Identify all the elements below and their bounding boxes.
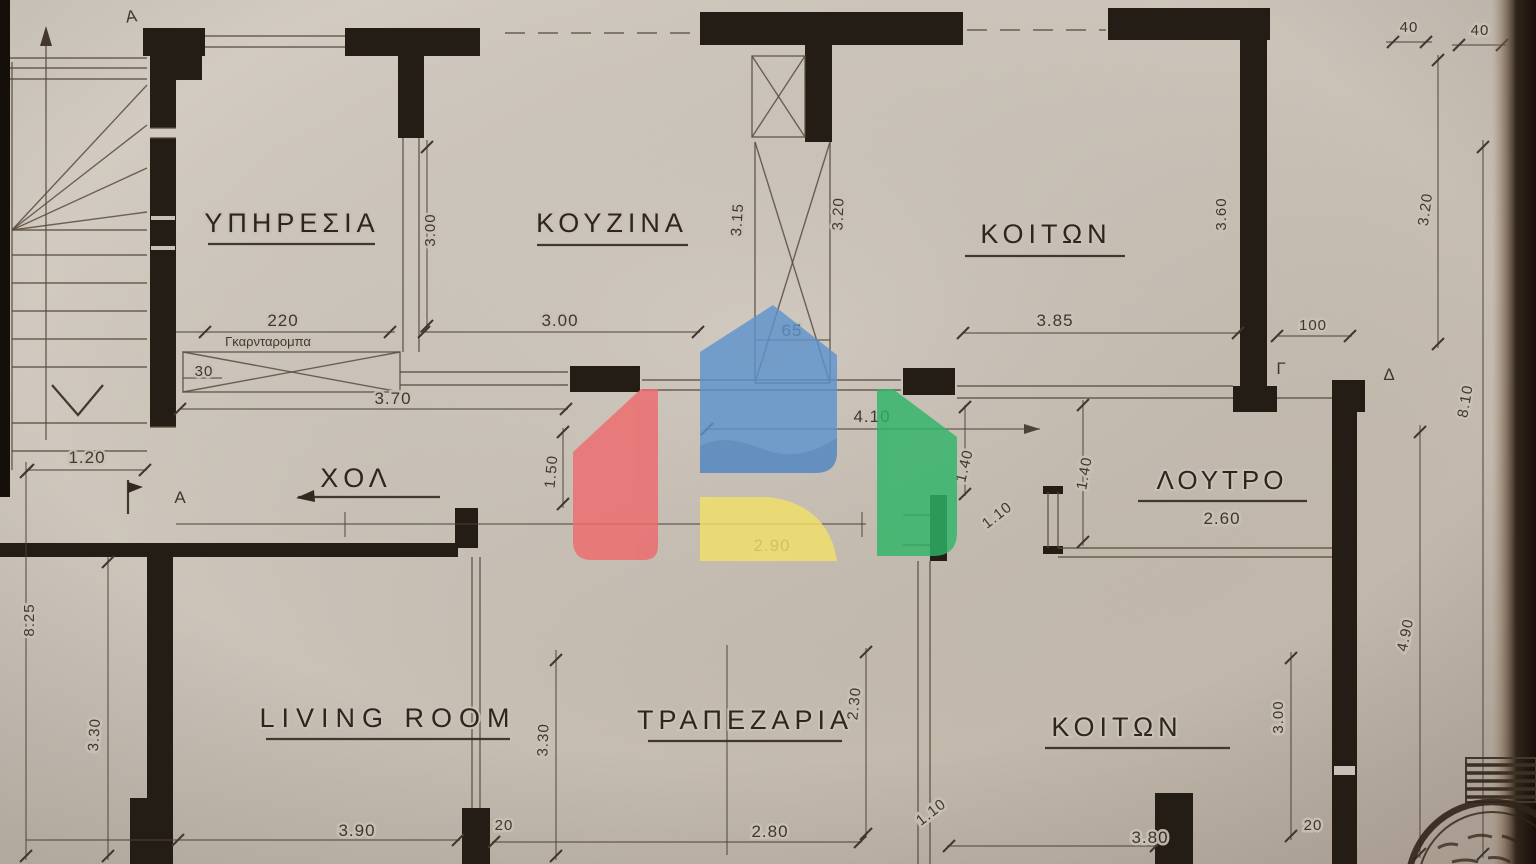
dim-3-80: 3.80: [1131, 828, 1168, 847]
dim-2-80: 2.80: [751, 822, 788, 841]
dim-40-a: 40: [1400, 19, 1419, 36]
dim-40-b: 40: [1471, 22, 1490, 39]
dim-30: 30: [195, 363, 214, 380]
dim-2-30: 2.30: [844, 686, 864, 721]
dim-100: 100: [1299, 317, 1327, 334]
marker-a-stairs: A: [174, 488, 186, 507]
dim-3-00-vertical: 3.00: [422, 213, 439, 246]
dim-3-00-kitchen: 3.00: [541, 311, 578, 330]
marker-delta: Δ: [1383, 365, 1394, 384]
dim-8-25: 8.25: [21, 603, 38, 636]
dim-3-90: 3.90: [338, 821, 375, 840]
room-label-bedroom-top: ΚΟΙΤΩΝ: [980, 219, 1111, 249]
floorplan-photo: ΥΠΗΡΕΣΙΑ ΚΟΥΖΙΝΑ ΚΟΙΤΩΝ ΧΟΛ ΛΟΥΤΡΟ LIVIN…: [0, 0, 1536, 864]
dim-1-50: 1.50: [542, 454, 562, 489]
label-wardrobe: Γκαρνταρομπα: [225, 334, 311, 349]
dim-1-20: 1.20: [68, 448, 105, 467]
dim-3-30-living: 3.30: [534, 723, 552, 757]
room-label-service: ΥΠΗΡΕΣΙΑ: [204, 208, 379, 238]
dim-3-30-left: 3.30: [85, 718, 104, 752]
dim-20-b: 20: [1304, 817, 1323, 834]
room-label-living: LIVING ROOM: [259, 703, 516, 733]
dim-220: 220: [267, 311, 298, 330]
dim-20-a: 20: [495, 817, 514, 834]
room-label-hall: ΧΟΛ: [320, 463, 392, 493]
room-label-dining: ΤΡΑΠΕΖΑΡΙΑ: [637, 705, 853, 735]
dim-3-70: 3.70: [374, 389, 411, 408]
dim-3-60: 3.60: [1213, 197, 1230, 230]
floor-plan-drawing: ΥΠΗΡΕΣΙΑ ΚΟΥΖΙΝΑ ΚΟΙΤΩΝ ΧΟΛ ΛΟΥΤΡΟ LIVIN…: [0, 0, 1536, 864]
room-label-bathroom: ΛΟΥΤΡΟ: [1157, 465, 1288, 495]
dim-3-85: 3.85: [1036, 311, 1073, 330]
dim-3-00-bedroom: 3.00: [1270, 700, 1287, 733]
dim-2-60: 2.60: [1203, 509, 1240, 528]
room-label-bedroom-bottom: ΚΟΙΤΩΝ: [1051, 712, 1182, 742]
dim-3-15-shaft: 3.15: [728, 203, 747, 237]
dim-3-20-shaft: 3.20: [829, 197, 847, 231]
stamp-striped-block: [1466, 758, 1536, 802]
room-label-kitchen: ΚΟΥΖΙΝΑ: [536, 208, 688, 238]
marker-gamma: Γ: [1276, 359, 1285, 378]
